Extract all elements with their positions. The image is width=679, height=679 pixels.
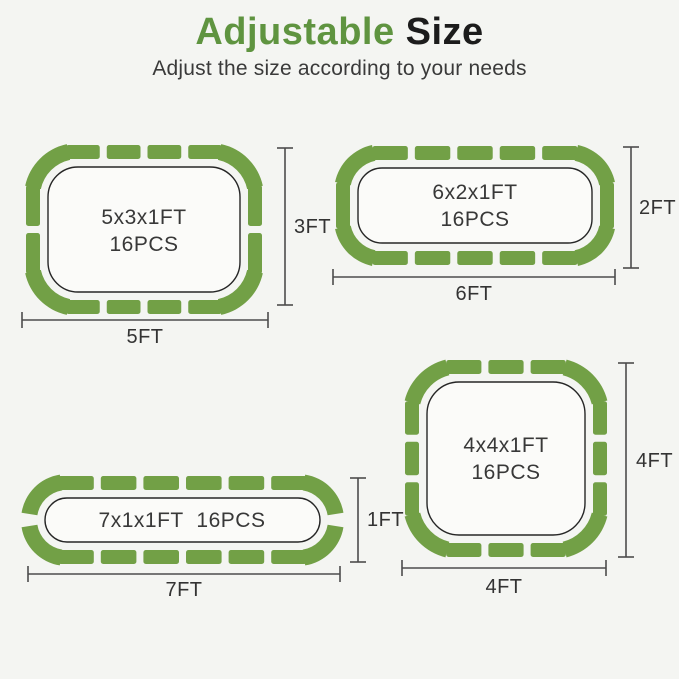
diagram-6x2x1ft-svg: 6x2x1FT 16PCS 2FT 6FT — [325, 138, 679, 313]
size-label: 6x2x1FT — [432, 181, 517, 204]
height-dim-label: 2FT — [639, 197, 676, 219]
diagram-4x4x1ft-svg: 4x4x1FT 16PCS 4FT 4FT — [390, 352, 679, 600]
height-dim-label: 4FT — [636, 450, 673, 472]
title-rest-text: Size — [406, 11, 484, 53]
width-dim-label: 7FT — [165, 579, 202, 601]
pcs-label: 16PCS — [440, 208, 509, 231]
diagram-7x1x1ft: 7x1x1FT 16PCS 1FT 7FT — [12, 465, 412, 617]
header: AdjustableSize Adjust the size according… — [0, 10, 679, 81]
page-subtitle: Adjust the size according to your needs — [0, 57, 679, 81]
pcs-label: 16PCS — [471, 461, 540, 484]
diagram-5x3x1ft-svg: 5x3x1FT 16PCS 3FT 5FT — [12, 132, 342, 362]
diagram-7x1x1ft-svg: 7x1x1FT 16PCS 1FT 7FT — [12, 465, 412, 617]
pcs-label: 16PCS — [109, 233, 178, 256]
diagram-4x4x1ft: 4x4x1FT 16PCS 4FT 4FT — [390, 352, 679, 600]
width-dim-label: 6FT — [455, 283, 492, 305]
page-title: AdjustableSize — [0, 10, 679, 54]
title-accent-text: Adjustable — [195, 11, 394, 53]
diagram-5x3x1ft: 5x3x1FT 16PCS 3FT 5FT — [12, 132, 342, 362]
size-label: 5x3x1FT — [101, 206, 186, 229]
width-dim-label: 4FT — [485, 576, 522, 598]
size-label: 7x1x1FT 16PCS — [99, 509, 266, 532]
width-dim-label: 5FT — [126, 326, 163, 348]
diagram-6x2x1ft: 6x2x1FT 16PCS 2FT 6FT — [325, 138, 679, 313]
infographic-canvas: AdjustableSize Adjust the size according… — [0, 0, 679, 679]
size-label: 4x4x1FT — [463, 434, 548, 457]
